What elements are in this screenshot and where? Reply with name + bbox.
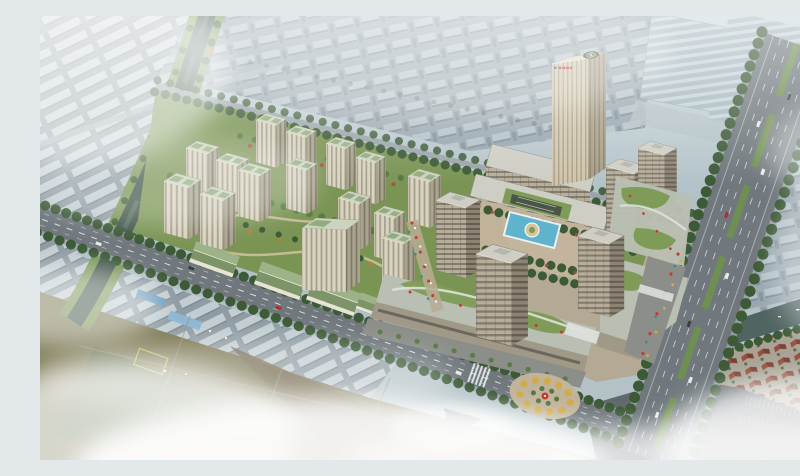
- aerial-masterplan-render: H: [40, 16, 800, 460]
- boat: [778, 316, 781, 317]
- office-tower-east: [578, 227, 624, 317]
- office-tower-center: [476, 244, 528, 345]
- residential-slab: [302, 218, 360, 292]
- office-tower-west: [436, 192, 480, 278]
- render-canvas: H: [40, 16, 800, 460]
